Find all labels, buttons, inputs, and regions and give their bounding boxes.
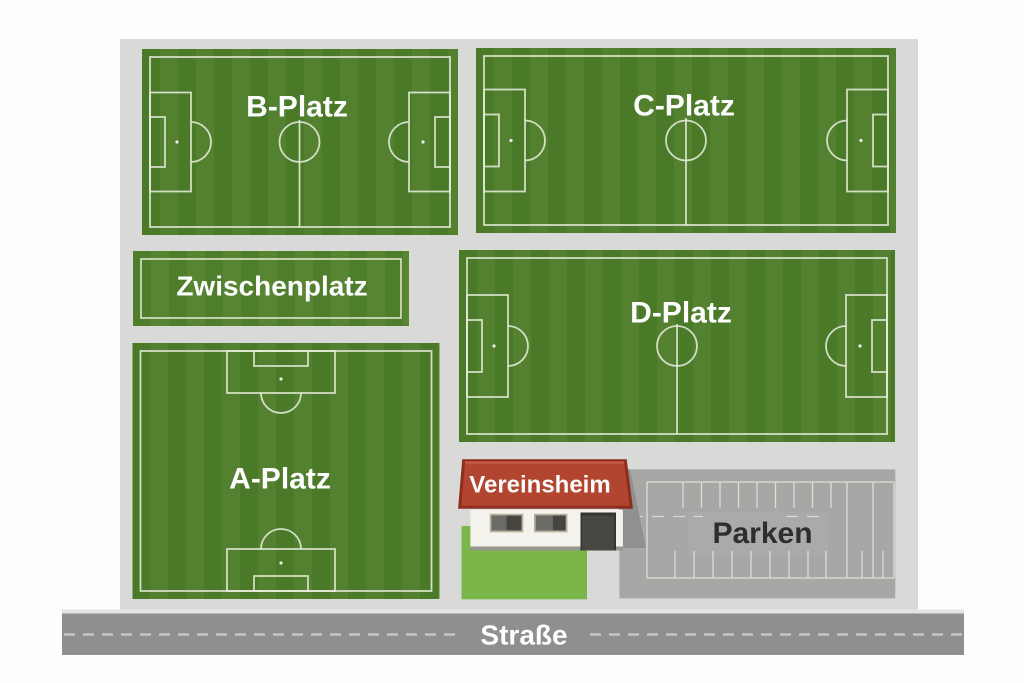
svg-text:B-Platz: B-Platz xyxy=(246,91,348,124)
svg-text:Parken: Parken xyxy=(712,517,812,550)
svg-text:C-Platz: C-Platz xyxy=(633,90,735,123)
svg-text:Straße: Straße xyxy=(480,620,567,651)
svg-text:D-Platz: D-Platz xyxy=(630,297,732,330)
svg-text:Vereinsheim: Vereinsheim xyxy=(469,472,610,499)
svg-text:Zwischenplatz: Zwischenplatz xyxy=(176,271,367,302)
svg-text:A-Platz: A-Platz xyxy=(229,463,331,496)
